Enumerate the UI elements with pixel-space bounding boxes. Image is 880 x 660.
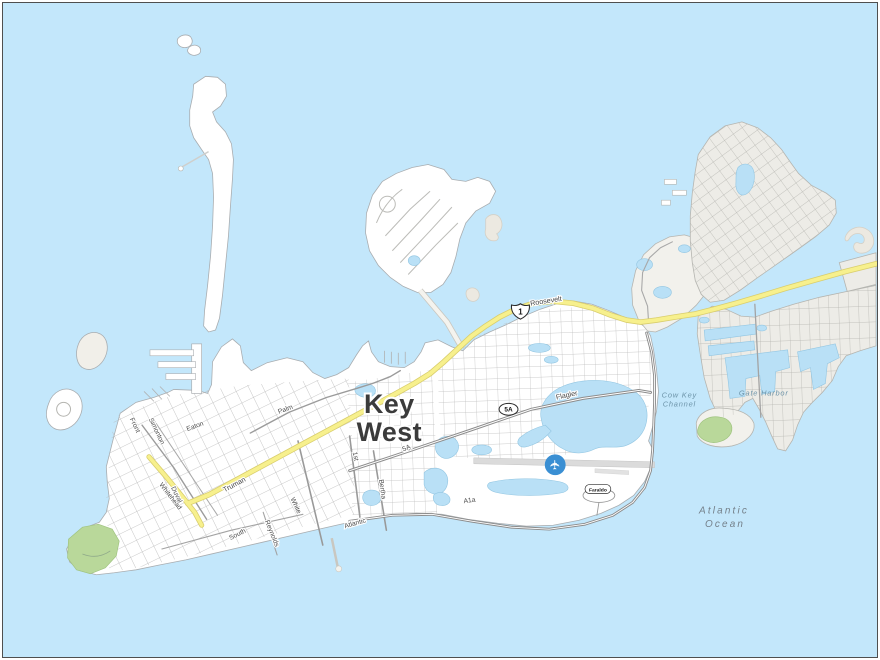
atlantic-ocean-label-2: Ocean [705, 519, 745, 530]
route-5a-shield: 5A [499, 403, 518, 415]
pond-golf-c [678, 245, 690, 253]
city-label: Key West [357, 389, 423, 447]
small-island-north-a [177, 35, 192, 48]
islet-south-sigsbee [466, 288, 479, 301]
pond-mid-a [528, 343, 550, 352]
gate-harbor-label: Gate Harbor [739, 388, 789, 397]
pond-stock-a [699, 317, 709, 323]
stock-dock-b [672, 190, 686, 195]
pond-stock-b [757, 325, 767, 331]
pond-cluster-b [433, 492, 450, 505]
pond-sigsbee [408, 256, 420, 266]
pond-runway-south [487, 479, 568, 496]
pond-cluster-a [424, 468, 448, 494]
faraldo-shield: Faraldo [585, 485, 611, 494]
airplane-glyph: ✈ [548, 459, 563, 470]
pond-small-1 [472, 445, 492, 455]
navy-pier-3 [166, 374, 196, 380]
atlantic-ocean-label-1: Atlantic [698, 505, 749, 516]
cow-key-channel-label-2: Channel [663, 399, 696, 408]
key-west-map-canvas[interactable]: ✈ 1 5A Faraldo Front Simonton Eaton Palm… [3, 3, 877, 657]
map-frame: ✈ 1 5A Faraldo Front Simonton Eaton Palm… [2, 2, 878, 658]
cow-key-channel-label-1: Cow Key [662, 390, 698, 399]
small-island-north-b [188, 45, 201, 55]
svg-text:1: 1 [518, 308, 523, 317]
pond-golf-b [654, 286, 672, 298]
breakwater-dot [178, 166, 183, 171]
navy-pier-1 [150, 350, 194, 356]
pier-tip [336, 566, 342, 572]
svg-text:5A: 5A [504, 407, 513, 414]
city-label-line1: Key [364, 389, 415, 419]
pond-mid-b [544, 356, 558, 363]
stock-dock-a [664, 179, 676, 184]
stock-dock-c [661, 200, 670, 205]
svg-text:Faraldo: Faraldo [589, 487, 607, 493]
navy-pier-2 [158, 362, 196, 368]
pond-white-st [363, 490, 381, 505]
city-label-line2: West [357, 417, 423, 447]
airport-icon: ✈ [545, 454, 566, 475]
